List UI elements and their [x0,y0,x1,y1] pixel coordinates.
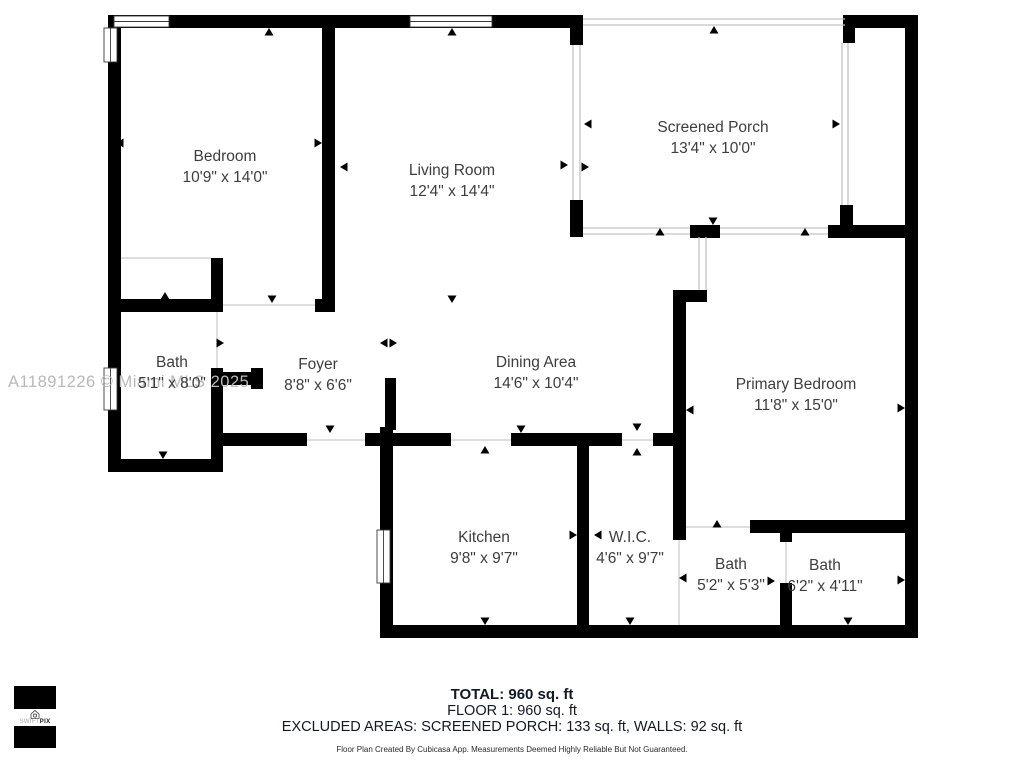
room-label-primary-bedroom: Primary Bedroom 11'8" x 15'0" [736,374,857,416]
room-label-screened-porch: Screened Porch 13'4" x 10'0" [657,117,768,159]
footer-summary: TOTAL: 960 sq. ft FLOOR 1: 960 sq. ft EX… [0,687,1024,754]
room-dims: 5'1" x 8'0" [138,373,206,394]
room-label-bath-1: Bath 5'1" x 8'0" [138,352,206,394]
room-label-foyer: Foyer 8'8" x 6'6" [284,354,352,396]
room-dims: 5'2" x 5'3" [697,575,765,596]
room-name: Screened Porch [657,117,768,138]
room-label-bath-2: Bath 5'2" x 5'3" [697,554,765,596]
room-name: W.I.C. [596,527,664,548]
room-name: Bedroom [182,146,267,167]
room-dims: 4'6" x 9'7" [596,548,664,569]
room-label-bedroom: Bedroom 10'9" x 14'0" [182,146,267,188]
mls-watermark: A11891226 © Miami MLS 2025 [8,373,249,392]
room-label-kitchen: Kitchen 9'8" x 9'7" [450,527,518,569]
room-dims: 9'8" x 9'7" [450,548,518,569]
floor-area-text: FLOOR 1: 960 sq. ft [0,704,1024,719]
room-name: Dining Area [493,352,578,373]
total-area-text: TOTAL: 960 sq. ft [0,687,1024,703]
room-name: Foyer [284,354,352,375]
room-dims: 12'4" x 14'4" [409,181,495,202]
room-label-bath-3: Bath 6'2" x 4'11" [787,555,862,597]
room-label-living-room: Living Room 12'4" x 14'4" [409,160,495,202]
disclaimer-text: Floor Plan Created By Cubicasa App. Meas… [0,745,1024,754]
room-dims: 14'6" x 10'4" [493,373,578,394]
room-name: Bath [138,352,206,373]
room-dims: 8'8" x 6'6" [284,375,352,396]
room-dims: 6'2" x 4'11" [787,576,862,597]
room-name: Living Room [409,160,495,181]
excluded-areas-text: EXCLUDED AREAS: SCREENED PORCH: 133 sq. … [0,720,1024,735]
room-dims: 11'8" x 15'0" [736,395,857,416]
room-name: Primary Bedroom [736,374,857,395]
room-name: Bath [787,555,862,576]
room-name: Kitchen [450,527,518,548]
room-name: Bath [697,554,765,575]
room-label-dining-area: Dining Area 14'6" x 10'4" [493,352,578,394]
room-dims: 13'4" x 10'0" [657,138,768,159]
room-dims: 10'9" x 14'0" [182,167,267,188]
room-label-wic: W.I.C. 4'6" x 9'7" [596,527,664,569]
